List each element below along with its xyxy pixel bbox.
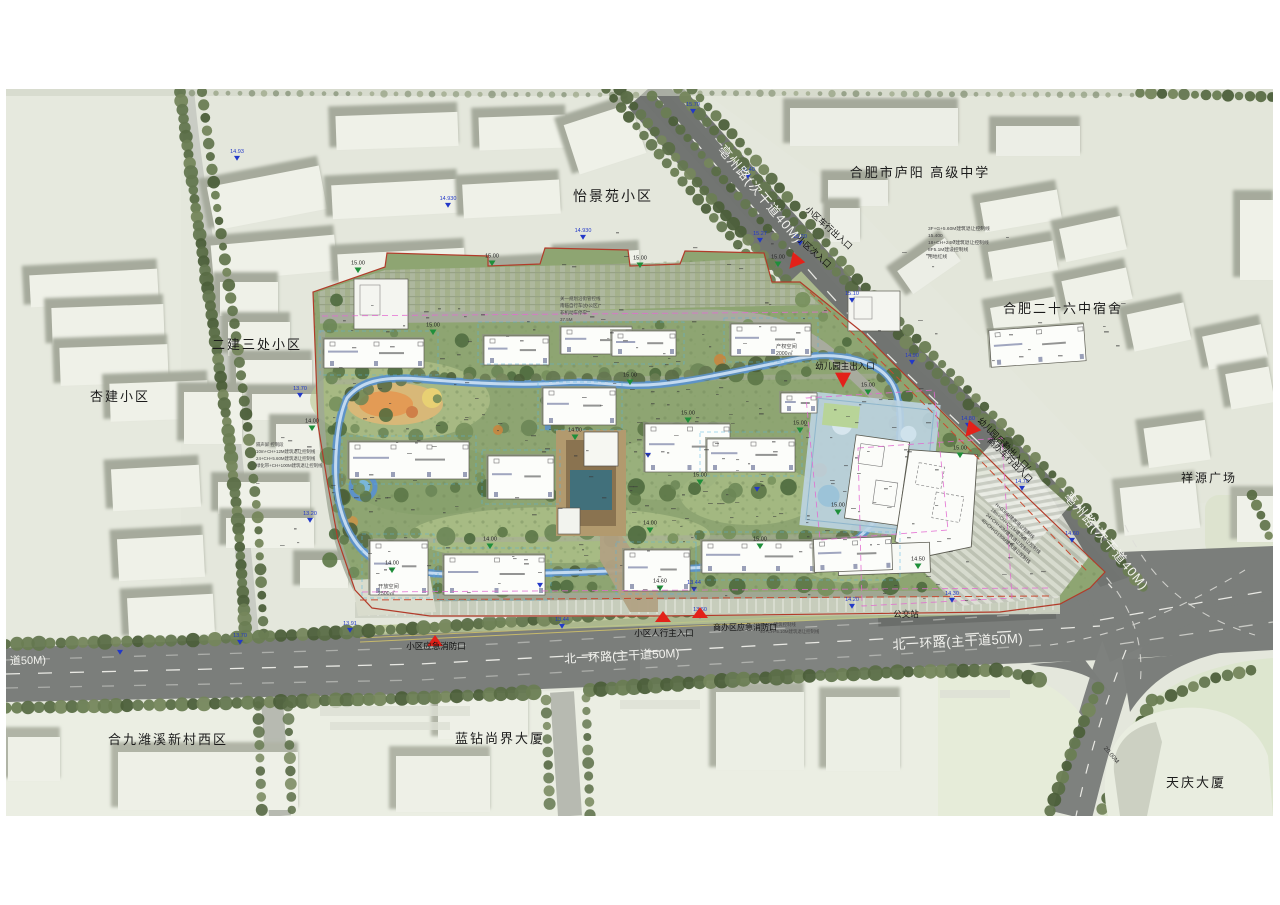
svg-text:15.00: 15.00	[831, 502, 845, 508]
svg-text:产权空间: 产权空间	[776, 342, 797, 350]
svg-text:15.00: 15.00	[426, 322, 440, 328]
svg-text:用地红线: 用地红线	[928, 253, 947, 260]
svg-text:15.400: 15.400	[928, 233, 943, 239]
svg-text:15.00: 15.00	[953, 445, 967, 451]
svg-text:37.5M: 37.5M	[560, 317, 573, 322]
svg-text:二建三处小区: 二建三处小区	[212, 337, 302, 352]
svg-text:公交站: 公交站	[893, 609, 919, 619]
svg-text:2000㎡: 2000㎡	[776, 349, 794, 357]
svg-text:15.00: 15.00	[861, 382, 875, 388]
svg-text:蓝钻尚界大厦: 蓝钻尚界大厦	[455, 731, 545, 746]
svg-text:15.00: 15.00	[623, 372, 637, 378]
svg-text:14.20: 14.20	[845, 597, 859, 603]
svg-text:14.80: 14.80	[961, 416, 975, 422]
svg-text:13.70: 13.70	[233, 633, 247, 639]
svg-text:14.60: 14.60	[653, 578, 667, 584]
svg-text:14.60: 14.60	[1065, 531, 1079, 537]
svg-text:小区人行主入口: 小区人行主入口	[634, 628, 694, 638]
svg-text:开放空间: 开放空间	[378, 582, 399, 590]
svg-text:15.00: 15.00	[771, 254, 785, 260]
svg-text:8F5.1M建设控制线: 8F5.1M建设控制线	[928, 246, 968, 253]
svg-text:18+CH+24M建筑退让控制线: 18+CH+24M建筑退让控制线	[928, 239, 989, 246]
svg-text:13.44: 13.44	[555, 617, 569, 623]
svg-text:天庆大厦: 天庆大厦	[1166, 775, 1226, 790]
svg-text:14.930: 14.930	[575, 228, 592, 234]
svg-text:14.00: 14.00	[385, 560, 399, 566]
svg-text:3F+G+5.60M建筑退让控制线: 3F+G+5.60M建筑退让控制线	[928, 225, 990, 232]
svg-text:10m+CH+12M建筑退让控制线: 10m+CH+12M建筑退让控制线	[256, 448, 316, 455]
svg-text:15.00: 15.00	[681, 410, 695, 416]
svg-text:14.50: 14.50	[911, 556, 925, 562]
svg-text:15.00: 15.00	[485, 253, 499, 259]
svg-text:14.930: 14.930	[440, 196, 457, 202]
svg-text:24+CH+5.60M建筑退让控制线: 24+CH+5.60M建筑退让控制线	[256, 455, 316, 462]
svg-text:合肥二十六中宿舍: 合肥二十六中宿舍	[1003, 301, 1123, 316]
svg-text:合九潍溪新村西区: 合九潍溪新村西区	[108, 732, 228, 747]
svg-text:14.93: 14.93	[230, 149, 244, 155]
svg-text:13.70: 13.70	[293, 386, 307, 392]
svg-text:13.20: 13.20	[303, 511, 317, 517]
svg-text:隔声屏 控制段: 隔声屏 控制段	[256, 441, 284, 448]
svg-text:道50M): 道50M)	[10, 652, 47, 667]
svg-text:绿化带+CH+100M建筑退让控制线: 绿化带+CH+100M建筑退让控制线	[256, 462, 323, 469]
svg-text:14.00: 14.00	[643, 520, 657, 526]
svg-text:怡景苑小区: 怡景苑小区	[573, 188, 653, 204]
svg-text:祥源广场: 祥源广场	[1181, 471, 1237, 485]
svg-text:14.30: 14.30	[945, 591, 959, 597]
svg-text:14.00: 14.00	[305, 418, 319, 424]
svg-text:14.00: 14.00	[483, 536, 497, 542]
svg-text:关一规划沿街管控线: 关一规划沿街管控线	[560, 295, 601, 302]
svg-text:幼儿园主出入口: 幼儿园主出入口	[815, 361, 875, 371]
svg-text:15.00: 15.00	[633, 255, 647, 261]
svg-text:小区应急消防口: 小区应急消防口	[406, 641, 466, 651]
svg-text:15.00: 15.00	[351, 260, 365, 266]
svg-text:13.91: 13.91	[343, 621, 357, 627]
svg-text:商办区应急消防口: 商办区应急消防口	[713, 622, 777, 632]
svg-text:15.00: 15.00	[693, 472, 707, 478]
svg-text:非机动车停车: 非机动车停车	[560, 309, 587, 316]
svg-text:杏建小区: 杏建小区	[90, 389, 150, 404]
svg-text:15.10: 15.10	[845, 291, 859, 297]
svg-text:合肥市庐阳 高级中学: 合肥市庐阳 高级中学	[850, 165, 991, 180]
svg-text:南临自行车(办公区): 南临自行车(办公区)	[560, 302, 599, 309]
svg-text:15.27: 15.27	[753, 231, 767, 237]
svg-text:13.44: 13.44	[687, 580, 701, 586]
svg-text:14.90: 14.90	[905, 353, 919, 359]
svg-text:15.70: 15.70	[686, 102, 700, 108]
svg-text:15.00: 15.00	[753, 536, 767, 542]
svg-text:2500㎡: 2500㎡	[378, 589, 396, 597]
